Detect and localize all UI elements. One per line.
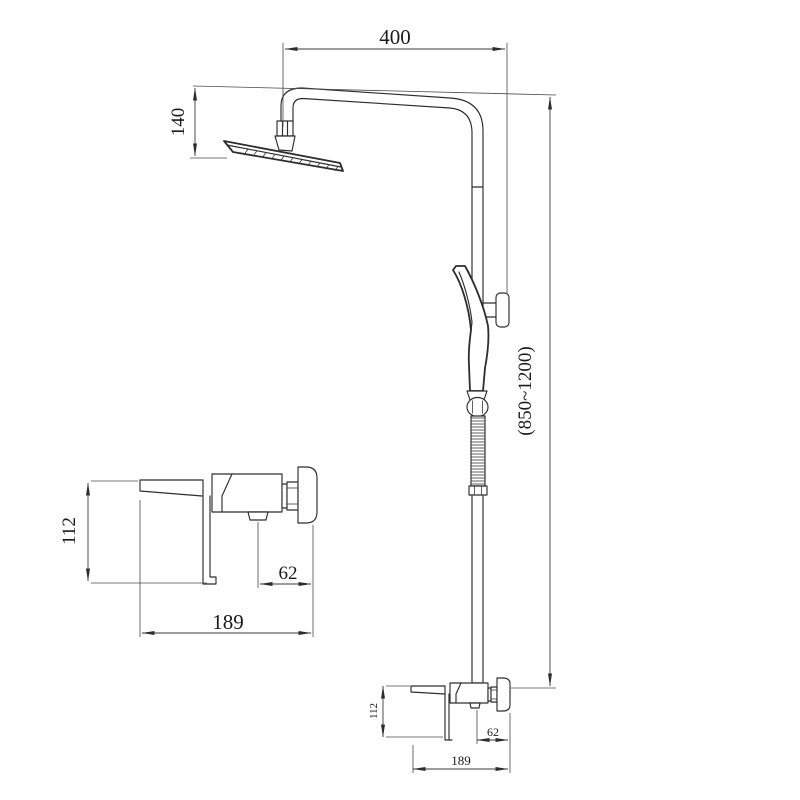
dim-label-main-112: 112 [368,703,380,719]
dim-label-height-range: (850~1200) [515,346,536,435]
mixer-lever [140,480,203,496]
head-mount [275,136,295,151]
ball-joint-nut [277,121,293,136]
mixer-outlet [248,512,268,520]
rain-shower-head [224,121,343,171]
dim-label-detail-112: 112 [59,517,80,545]
shower-hose [469,416,487,495]
hose-ball-nut [467,398,488,417]
dim-detail-outlet-offset: 62 [258,522,313,637]
dim-detail-height: 112 [59,481,207,583]
riser-pipe [281,88,483,683]
bracket-knob [496,293,509,327]
main-view [224,88,510,740]
mixer-neck [282,484,287,508]
dim-label-main-62: 62 [487,725,499,739]
dim-label-detail-62: 62 [279,563,298,584]
shower-arm-and-riser-pipe [281,88,483,683]
mixer-hex-small [491,687,497,702]
mixer-wall-flange [298,467,317,523]
dim-label-detail-189: 189 [212,610,244,634]
mixer-outlet-small [470,703,480,708]
dim-label-140: 140 [168,108,189,137]
shower-system-dimension-drawing: 400 140 (850~1200) 112 62 [0,0,800,800]
dim-column-height: (850~1200) [511,97,556,688]
dim-main-mixer-length: 189 [413,745,508,773]
mixer-hex [287,482,298,510]
hose-coupling-nut [469,486,487,495]
dim-main-mixer-outlet-offset: 62 [477,710,510,773]
dim-label-400: 400 [379,25,411,49]
dim-label-main-189: 189 [451,753,471,768]
mixer-wall-flange-small [497,678,510,711]
mixer-lever-small [411,686,445,694]
